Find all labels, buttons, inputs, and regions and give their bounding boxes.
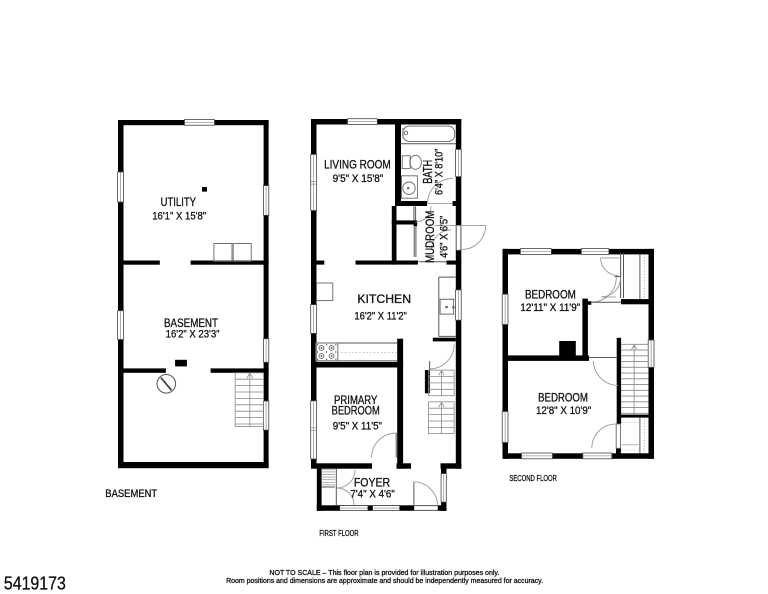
svg-text:BEDROOM: BEDROOM xyxy=(538,391,588,405)
svg-text:6'4" X 8'10": 6'4" X 8'10" xyxy=(433,149,445,195)
svg-text:Room positions and dimensions: Room positions and dimensions are approx… xyxy=(226,576,543,585)
svg-text:12'11" X 11'9": 12'11" X 11'9" xyxy=(520,302,580,314)
svg-text:16'1" X 15'8": 16'1" X 15'8" xyxy=(152,210,206,222)
svg-text:12'8" X 10'9": 12'8" X 10'9" xyxy=(536,405,591,417)
svg-text:16'2" X 23'3": 16'2" X 23'3" xyxy=(166,328,220,340)
svg-text:16'2" X 11'2": 16'2" X 11'2" xyxy=(354,311,407,323)
svg-text:9'5" X 15'8": 9'5" X 15'8" xyxy=(333,173,384,185)
svg-text:KITCHEN: KITCHEN xyxy=(357,292,411,306)
svg-text:BASEMENT: BASEMENT xyxy=(105,488,157,500)
svg-text:7'4" X 4'6": 7'4" X 4'6" xyxy=(350,488,395,500)
svg-text:LIVING ROOM: LIVING ROOM xyxy=(324,157,391,171)
svg-text:FIRST FLOOR: FIRST FLOOR xyxy=(319,528,358,538)
svg-text:SECOND FLOOR: SECOND FLOOR xyxy=(509,473,557,483)
svg-text:BEDROOM: BEDROOM xyxy=(332,403,380,417)
svg-text:UTILITY: UTILITY xyxy=(161,195,196,209)
svg-text:4'6" X 6'5": 4'6" X 6'5" xyxy=(438,216,450,258)
svg-text:BEDROOM: BEDROOM xyxy=(525,288,576,302)
svg-text:MUDROOM: MUDROOM xyxy=(423,211,437,263)
svg-text:5419173: 5419173 xyxy=(4,574,66,594)
svg-text:9'5" X 11'5": 9'5" X 11'5" xyxy=(333,420,382,432)
